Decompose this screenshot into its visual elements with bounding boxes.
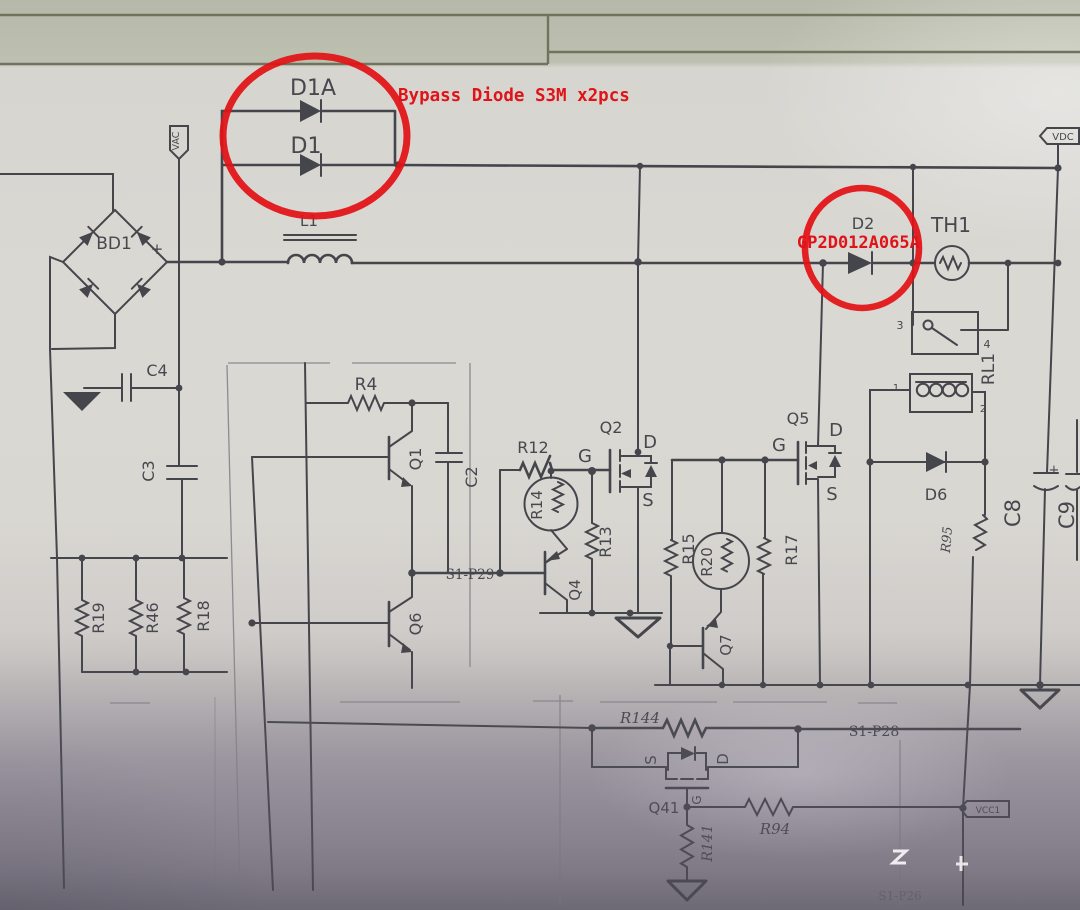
s1p29-net: S1-P29 (412, 567, 545, 583)
q5-label: Q5 (787, 409, 810, 428)
q5-gate-pin: G (772, 435, 786, 456)
r14-label: R14 (528, 490, 546, 520)
relay-pin4: 4 (984, 338, 991, 351)
q6-label: Q6 (406, 613, 425, 636)
bridge-plus-sign: + (151, 240, 164, 258)
d2-label: D2 (852, 214, 875, 233)
q2-source-pin: S (642, 490, 653, 511)
r20-label: R20 (698, 547, 716, 577)
r19-label: R19 (89, 602, 108, 633)
s1p29-label: S1-P29 (446, 567, 495, 583)
r18-label: R18 (194, 600, 213, 631)
q41-drain-pin: D (714, 753, 732, 765)
r46-label: R46 (143, 602, 162, 633)
vdc-c8-c9: VDC + C8 C9 (1001, 128, 1080, 685)
c2-label: C2 (462, 466, 481, 487)
r141-label: R141 (700, 824, 716, 862)
r95-label: R95 (939, 526, 956, 555)
d6-label: D6 (925, 485, 948, 504)
s1p28-label: S1-P28 (849, 724, 899, 740)
q5-source-pin: S (826, 484, 837, 505)
q1-label: Q1 (406, 448, 425, 471)
d1-label: D1 (291, 134, 322, 159)
q2-driver-block: R12 R14 R13 Q2 G D S Q4 (500, 166, 662, 637)
relay-pin3: 3 (897, 319, 904, 332)
d2-part-text: GP2D012A065A (797, 233, 920, 253)
q5-driver-block: R15 R20 R17 Q7 Q5 G D S (665, 263, 843, 685)
rl1-label: RL1 (979, 353, 999, 385)
q2-gate-pin: G (578, 446, 592, 467)
q2-label: Q2 (600, 418, 623, 437)
c8-label: C8 (1001, 499, 1025, 527)
c3-label: C3 (139, 460, 158, 481)
q41-source-pin: S (642, 755, 660, 765)
bypass-note-text: Bypass Diode S3M x2pcs (398, 86, 630, 106)
q41-block: R144 S1-P28 S D Q41 G R141 R94 VCC1 S1-P… (592, 709, 1020, 903)
c9-label: C9 (1055, 501, 1079, 529)
q7-label: Q7 (717, 634, 735, 655)
vac-net-flag: VAC (170, 126, 188, 466)
vac-label: VAC (171, 131, 182, 150)
bd1-label: BD1 (96, 234, 132, 254)
r144-label: R144 (619, 709, 660, 727)
lower-ground-rail (655, 685, 1080, 708)
r17-label: R17 (782, 534, 801, 565)
cap-c3: C3 (139, 460, 197, 558)
bridge-rectifier-bd1: BD1 + (0, 174, 167, 888)
th1-label: TH1 (930, 213, 971, 237)
q5-drain-pin: D (829, 420, 843, 441)
r94-label: R94 (759, 820, 790, 838)
d1a-label: D1A (290, 76, 336, 101)
c8-plus-sign: + (1049, 463, 1060, 478)
photo-edge-lines (0, 15, 1080, 64)
relay-pin1: 1 (893, 383, 899, 394)
q4-label: Q4 (566, 579, 584, 600)
r15-label: R15 (679, 533, 698, 564)
schematic-photo: BD1 + VAC D1A D1 L1 D2 TH1 C4 (0, 0, 1080, 910)
c4-label: C4 (146, 361, 167, 380)
cap-c4: C4 (63, 361, 179, 411)
relay-rl1-block: 3 4 1 2 RL1 D6 R95 (870, 167, 1008, 905)
q2-drain-pin: D (643, 432, 657, 453)
schematic-drawing: BD1 + VAC D1A D1 L1 D2 TH1 C4 (0, 0, 1080, 910)
r13-label: R13 (596, 526, 615, 557)
resistors-r19-r46-r18: R19 R46 R18 (51, 558, 227, 672)
s1p26-label: S1-P26 (878, 889, 921, 903)
r4-label: R4 (355, 375, 378, 395)
main-bus: L1 D2 TH1 (167, 212, 1058, 280)
q41-label: Q41 (649, 799, 680, 817)
q41-gate-pin: G (690, 795, 704, 804)
vcc1-label: VCC1 (976, 806, 1000, 816)
vdc-label: VDC (1052, 132, 1074, 143)
relay-pin2: 2 (980, 404, 986, 415)
r12-label: R12 (517, 438, 548, 457)
